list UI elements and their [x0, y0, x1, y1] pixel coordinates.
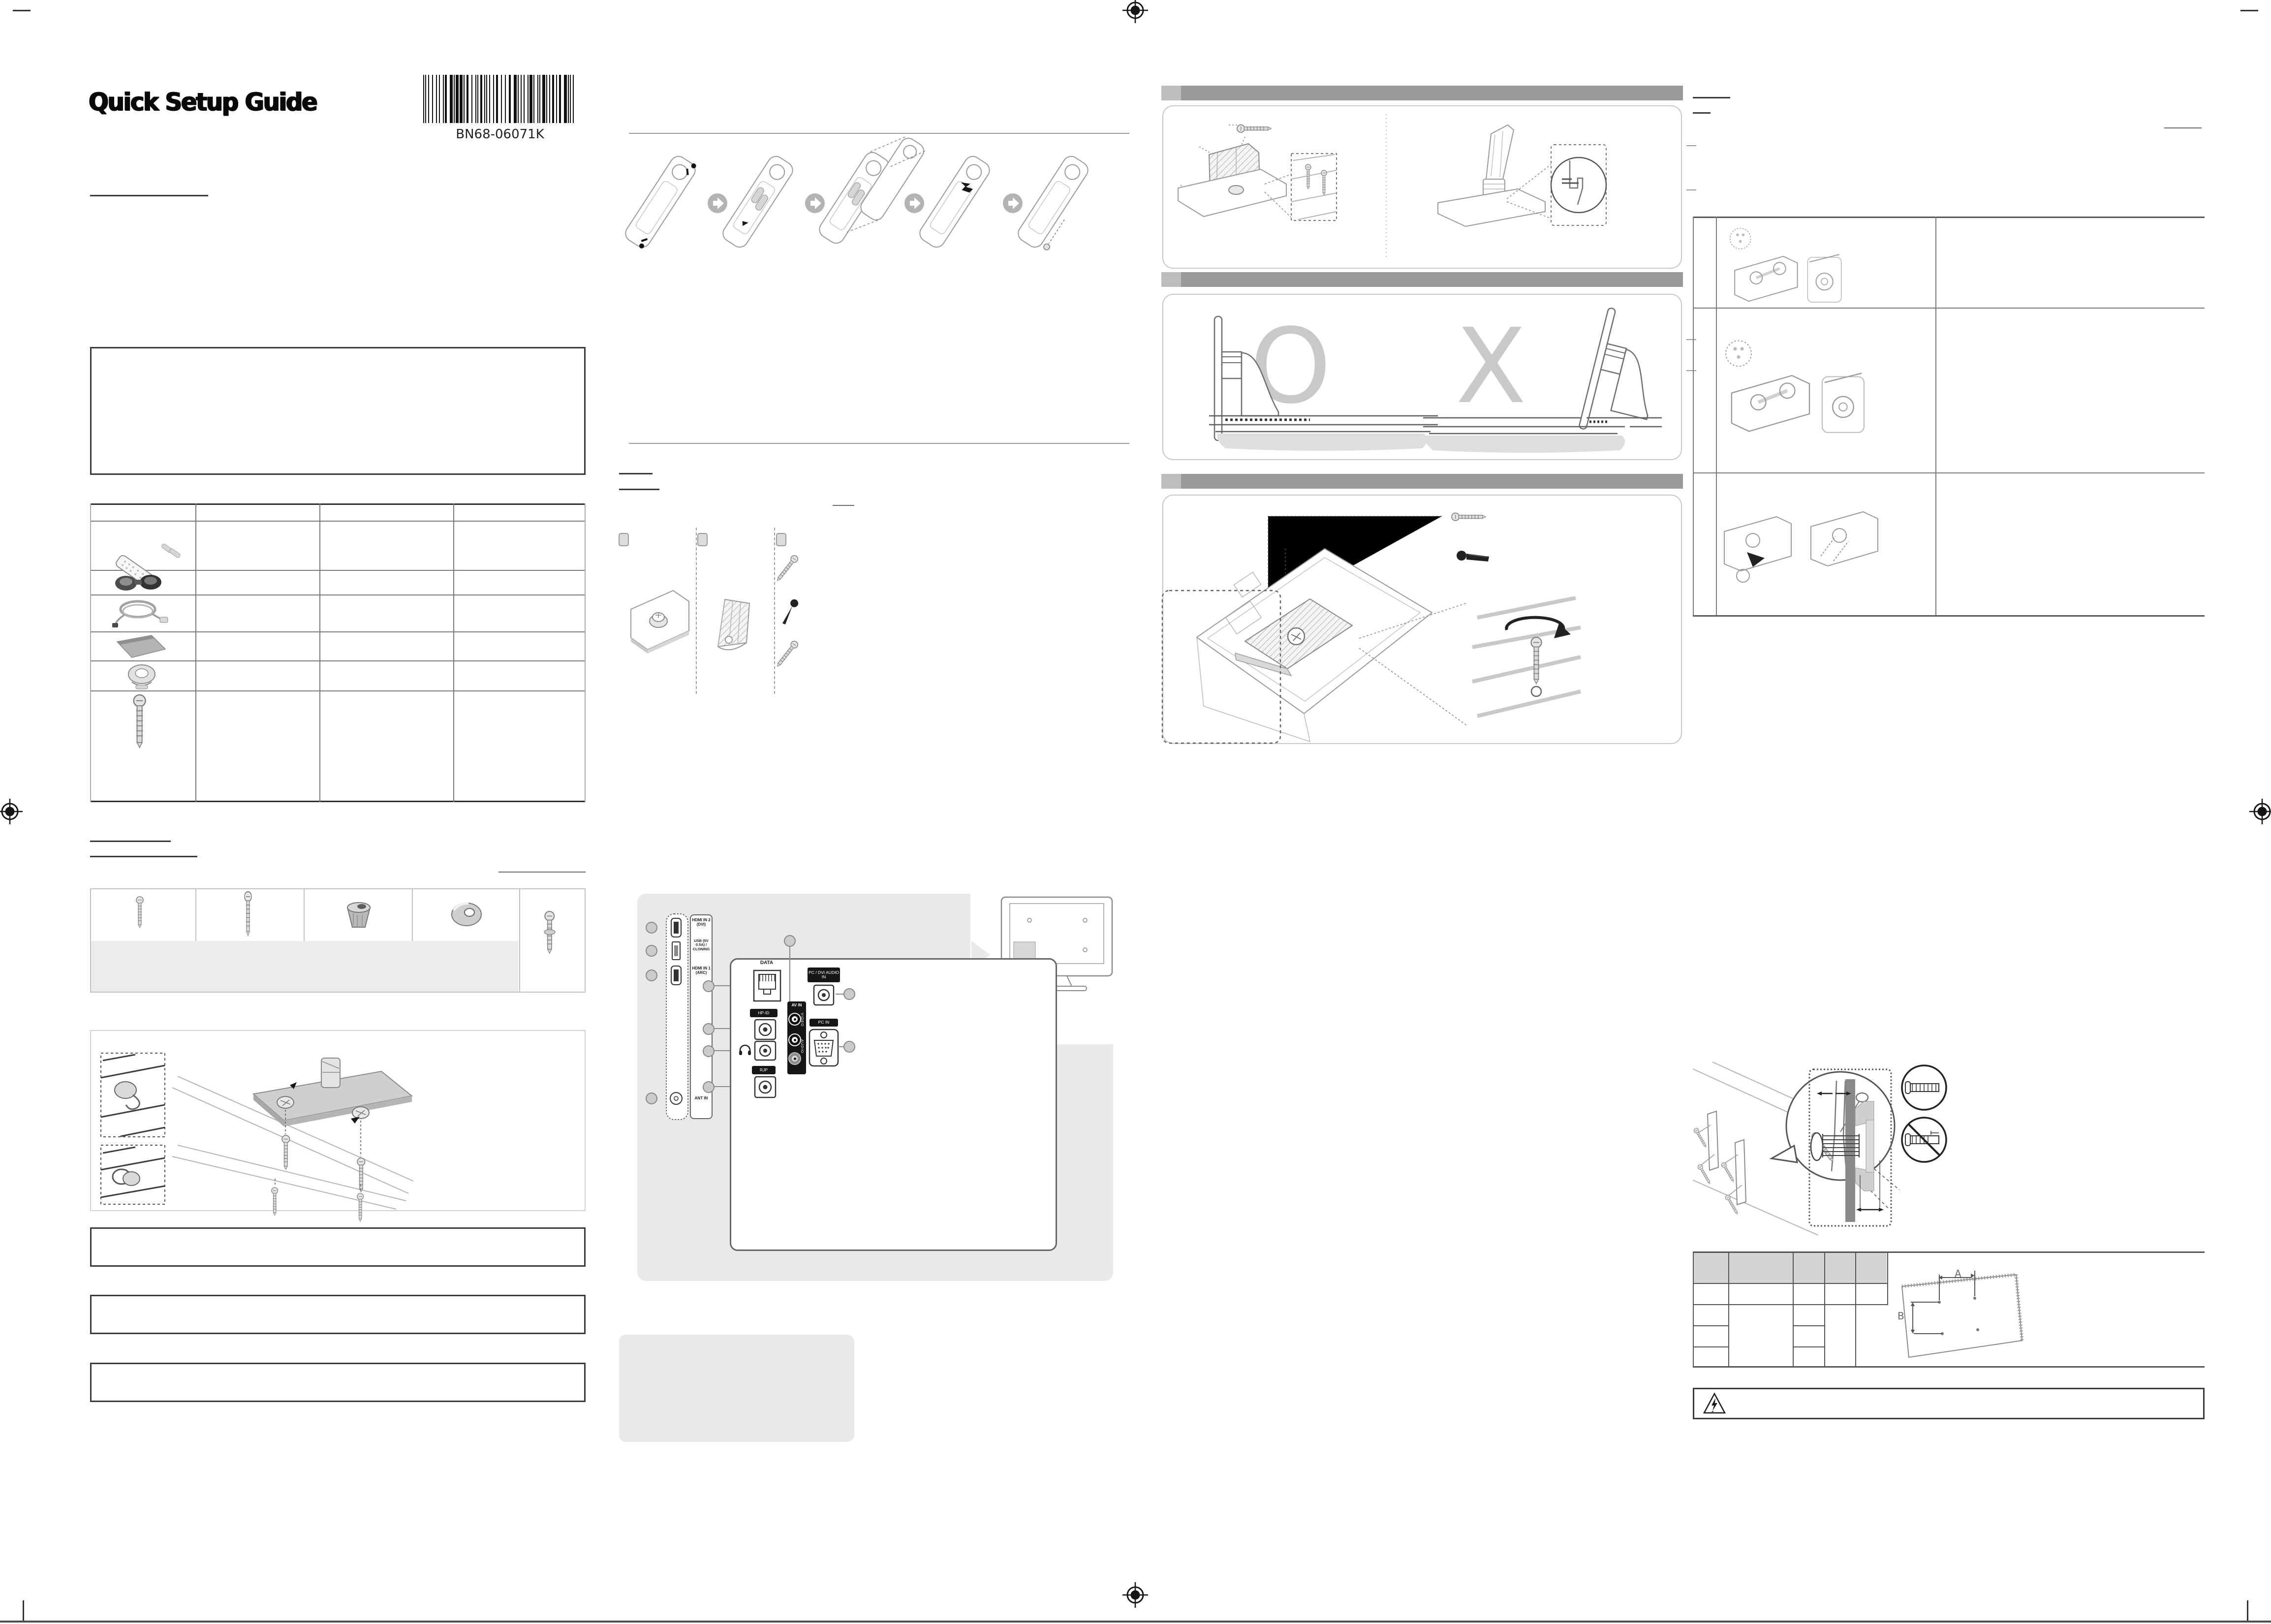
- parts-divider: [774, 528, 775, 694]
- hdmi2-label: HDMI IN 2 (DVI): [690, 918, 712, 927]
- assembly-screws: [777, 550, 806, 673]
- adapter-table-line: [1693, 472, 2205, 473]
- heading-rule: [619, 489, 659, 490]
- callout-dot: [646, 1093, 657, 1104]
- holder-wire-icon: [112, 572, 171, 594]
- vesa-dimension-diagram: [1892, 1266, 2040, 1372]
- accessories-table-line: [585, 503, 586, 802]
- barcode: [423, 75, 577, 123]
- callout-dot: [843, 988, 855, 1000]
- av-in-label: AV IN: [787, 1003, 806, 1008]
- adapter-table-line: [1935, 217, 1936, 615]
- data-port: [753, 969, 782, 1004]
- adapter-diagram-1: [1727, 227, 1875, 311]
- heading-rule: [833, 505, 854, 506]
- headphone-port: [754, 1040, 778, 1062]
- part-label-chip: [619, 533, 629, 546]
- vesa-table-border: [1693, 1251, 2205, 1253]
- accessories-table-line: [90, 631, 586, 632]
- pc-dvi-audio-port: [813, 984, 836, 1007]
- accessories-table-border: [90, 503, 586, 505]
- side-panel-strip: [665, 913, 690, 1122]
- crop-mark: [13, 10, 31, 11]
- part-label-chip: [776, 533, 786, 546]
- accessories-table-line: [319, 503, 320, 802]
- vesa-table-line: [1693, 1346, 1729, 1347]
- section-rule: [629, 443, 1129, 444]
- holder-ring-icon: [117, 662, 166, 691]
- anchor-holder-icon: [340, 899, 379, 931]
- remote-battery-steps: [632, 144, 1127, 266]
- ant-label: ANT IN: [690, 1096, 712, 1101]
- section-bar-cap: [1161, 272, 1181, 287]
- stand-assembly-diagram: [1162, 105, 1682, 269]
- crop-mark: [2247, 1600, 2248, 1622]
- note-box: [90, 1227, 586, 1267]
- registration-mark: [1122, 1582, 1148, 1608]
- callout-dot: [703, 1081, 715, 1093]
- accessories-table-line: [90, 503, 91, 802]
- section-rule: [629, 133, 1129, 134]
- heading-rule: [1693, 97, 1730, 98]
- headphone-icon: [738, 1043, 752, 1056]
- adapter-diagram-3: [1717, 497, 1914, 605]
- vesa-table-line: [1693, 1283, 1888, 1284]
- vesa-table-line: [1793, 1252, 1794, 1367]
- remote-accessory-icon: [106, 523, 185, 568]
- screw-short-icon: [136, 897, 151, 931]
- adapter-table-line: [1693, 217, 1694, 615]
- callout-dot: [703, 980, 715, 992]
- crop-mark: [2240, 10, 2258, 11]
- note-box: [90, 1295, 586, 1334]
- vesa-table-line: [1887, 1252, 1888, 1305]
- vesa-table-line: [1793, 1346, 1825, 1347]
- vesa-table-line: [1855, 1252, 1856, 1367]
- audio-r-jack: [788, 1052, 801, 1065]
- section-bar-cap: [1161, 86, 1181, 100]
- registration-mark: [0, 799, 23, 824]
- audio-l-jack: [788, 1033, 801, 1046]
- note-box: [90, 1363, 586, 1402]
- note-panel: [619, 1335, 854, 1442]
- caution-box: [1693, 1388, 2205, 1419]
- hardware-strip-line: [519, 888, 520, 993]
- registration-mark: [1122, 0, 1148, 23]
- section-bar: [1181, 474, 1683, 489]
- pc-in-badge: PC IN: [809, 1019, 838, 1027]
- combo-screw-icon: [544, 911, 564, 973]
- vesa-table-header: [1693, 1252, 1887, 1283]
- adapter-diagram-2: [1722, 340, 1880, 438]
- adapter-table-border: [1693, 615, 2205, 617]
- accessories-table-line: [195, 503, 196, 802]
- usb-label: USB (5V 0.5A) / CLONING: [690, 939, 712, 951]
- gutter-tick: [1686, 145, 1696, 146]
- callout-dot: [843, 1041, 855, 1053]
- guide-stand-part: [711, 595, 760, 655]
- callout-dot: [703, 1023, 715, 1035]
- placement-diagrams: [1162, 294, 1682, 460]
- rjp-port: [754, 1076, 778, 1099]
- vesa-table-line: [1793, 1325, 1825, 1326]
- rjp-badge: RJP: [752, 1066, 776, 1074]
- page-title: Quick Setup Guide: [89, 88, 316, 116]
- section-bar: [1181, 86, 1683, 100]
- accessories-table-border: [90, 801, 586, 802]
- page-bottom-edge: [0, 1621, 2271, 1623]
- warning-text-box: [90, 347, 586, 475]
- heading-rule: [1693, 112, 1711, 114]
- pc-dvi-audio-badge: PC / DVI AUDIO IN: [808, 968, 840, 982]
- accessories-table-line: [90, 521, 586, 522]
- vesa-table-line: [1693, 1325, 1729, 1326]
- part-label-chip: [697, 533, 708, 546]
- vesa-table-line: [1693, 1252, 1694, 1367]
- barcode-label: BN68-06071K: [423, 127, 577, 142]
- leader-line: [789, 947, 790, 1001]
- video-label: VIDEO: [800, 1013, 805, 1035]
- caution-icon: [1703, 1392, 1726, 1415]
- heading-rule: [498, 872, 586, 873]
- crop-mark: [23, 1600, 24, 1622]
- vesa-table-line: [1824, 1252, 1825, 1367]
- dimension-b-label: B: [1898, 1310, 1904, 1322]
- data-label: DATA: [746, 960, 788, 966]
- section-bar-cap: [1161, 474, 1181, 489]
- pc-in-port: [809, 1029, 839, 1068]
- stand-screw-icon: [133, 695, 153, 749]
- callout-dot: [646, 922, 657, 934]
- heading-rule: [2164, 127, 2202, 128]
- parts-divider: [696, 528, 697, 694]
- callout-dot: [646, 945, 657, 957]
- power-cord-icon: [109, 596, 173, 629]
- video-jack: [788, 1013, 801, 1026]
- manual-page: Quick Setup Guide BN68-06071K: [0, 0, 2271, 1624]
- heading-rule: [90, 195, 208, 196]
- gutter-tick: [1686, 339, 1696, 340]
- hp-id-badge: HP-ID: [750, 1009, 778, 1017]
- gutter-tick: [1686, 189, 1696, 190]
- gutter-tick: [1686, 370, 1696, 371]
- stand-base-part: [626, 580, 695, 658]
- hardware-strip-shaded-row: [91, 941, 518, 992]
- screw-long-icon: [244, 892, 259, 938]
- hdmi1-label: HDMI IN 1 (ARC): [690, 967, 712, 975]
- registration-mark: [2249, 799, 2271, 824]
- callout-dot: [784, 935, 796, 947]
- adapter-table-border: [1693, 217, 2205, 218]
- hp-id-port: [754, 1019, 778, 1041]
- wall-bracket-diagram: [1693, 1062, 2205, 1242]
- washer-ring-icon: [447, 900, 486, 929]
- heading-rule: [90, 841, 171, 842]
- callout-dot: [646, 969, 657, 981]
- heading-rule: [619, 473, 653, 474]
- vesa-table-line: [1693, 1304, 1888, 1305]
- stand-screw-diagram: [1162, 495, 1682, 744]
- accessories-table-line: [90, 660, 586, 661]
- heading-rule: [90, 856, 197, 857]
- cleaning-cloth-icon: [114, 634, 168, 659]
- accessories-table-line: [453, 503, 454, 802]
- adapter-table-line: [1716, 217, 1717, 615]
- section-bar: [1181, 272, 1683, 287]
- accessories-table-line: [90, 570, 586, 571]
- accessories-table-line: [90, 594, 586, 595]
- callout-dot: [703, 1045, 715, 1057]
- stand-fixing-diagram: [91, 1031, 585, 1210]
- audio-label: AUDIO: [800, 1039, 805, 1069]
- vesa-table-line: [1728, 1252, 1729, 1367]
- dimension-a-label: A: [1955, 1268, 1961, 1280]
